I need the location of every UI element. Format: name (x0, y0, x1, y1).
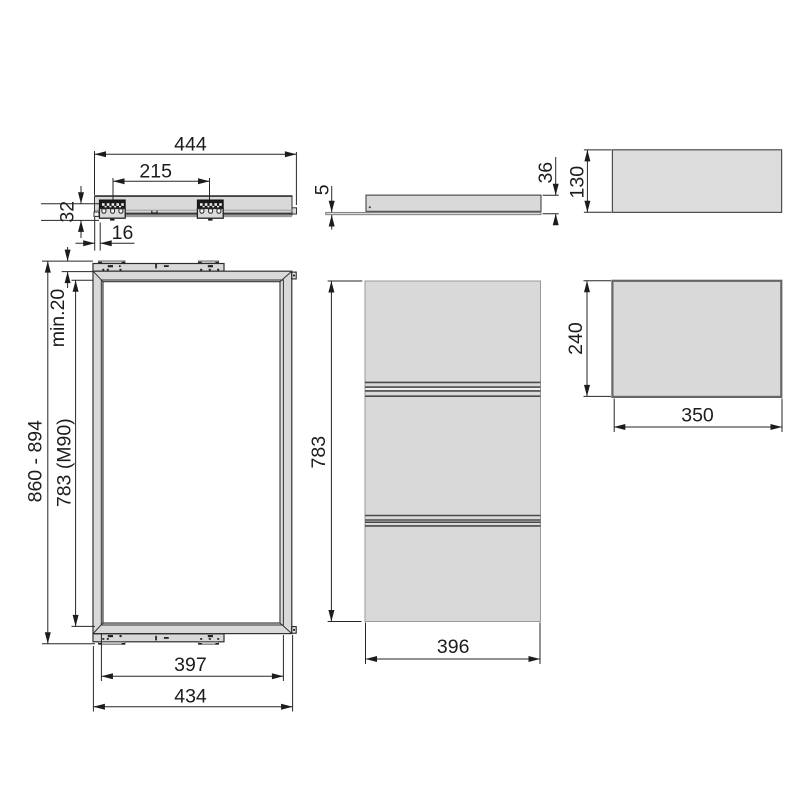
svg-text:860 - 894: 860 - 894 (25, 420, 47, 503)
svg-text:350: 350 (681, 404, 714, 426)
svg-text:434: 434 (174, 686, 207, 708)
svg-text:240: 240 (565, 322, 587, 355)
svg-text:16: 16 (112, 222, 134, 244)
svg-text:783: 783 (308, 436, 330, 469)
svg-text:5: 5 (312, 184, 334, 195)
svg-text:min.20: min.20 (47, 289, 69, 348)
svg-text:396: 396 (437, 636, 470, 658)
svg-text:215: 215 (139, 160, 172, 182)
svg-text:783 (M90): 783 (M90) (54, 418, 76, 507)
svg-text:36: 36 (535, 162, 557, 184)
svg-text:444: 444 (174, 134, 207, 156)
svg-text:130: 130 (566, 166, 588, 199)
svg-text:397: 397 (174, 654, 207, 676)
svg-text:32: 32 (57, 201, 79, 223)
